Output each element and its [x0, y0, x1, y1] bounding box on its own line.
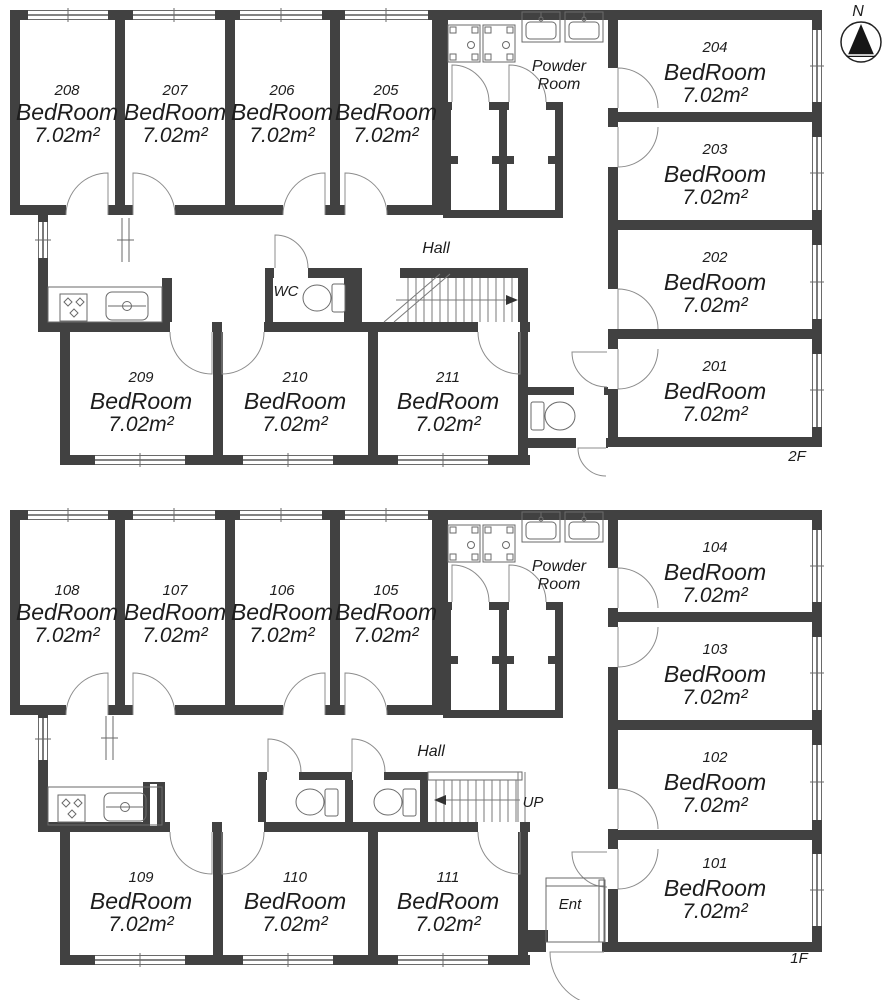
door-opening [514, 656, 548, 664]
floor-label-2f: 2F [787, 448, 806, 465]
door-opening [283, 205, 325, 215]
door-opening [576, 438, 606, 448]
stair-landing [428, 772, 522, 780]
room-type: BedRoom [231, 599, 333, 625]
room-number: 105 [373, 582, 399, 599]
room-label: 108BedRoom7.02m² [16, 582, 118, 647]
compass: N [841, 3, 881, 62]
room-type: BedRoom [335, 599, 437, 625]
door-arc [618, 127, 658, 167]
wall [528, 930, 548, 944]
door-arc [618, 68, 658, 108]
door-opening [608, 568, 618, 608]
room-label: 103BedRoom7.02m² [664, 641, 766, 709]
room-area: 7.02m² [682, 294, 748, 317]
door-opening [345, 705, 387, 715]
north-label: N [852, 3, 864, 20]
room-labels-1f: 108BedRoom7.02m² 107BedRoom7.02m² 106Bed… [16, 539, 766, 936]
kitchen-2f [48, 287, 162, 322]
wall [400, 268, 518, 278]
room-area: 7.02m² [682, 794, 748, 817]
door-opening [133, 205, 175, 215]
room-label: 208BedRoom7.02m² [16, 82, 118, 147]
room-number: 204 [701, 39, 727, 56]
door-opening [452, 602, 489, 610]
wall [618, 220, 812, 230]
window [810, 745, 824, 820]
door-opening [283, 705, 325, 715]
room-area: 7.02m² [353, 624, 419, 647]
room-labels-2f: 208BedRoom7.02m² 207BedRoom7.02m² 206Bed… [16, 39, 766, 436]
washing-machine-icon [448, 25, 480, 62]
door-arc [222, 832, 264, 874]
window [243, 453, 333, 467]
window [810, 245, 824, 319]
door-opening [509, 602, 546, 610]
room-label: 207BedRoom7.02m² [124, 82, 226, 147]
room-label: 202BedRoom7.02m² [664, 249, 766, 317]
window [243, 953, 333, 967]
door-arc [268, 739, 301, 772]
wall [265, 278, 273, 322]
wall [518, 268, 528, 322]
door-opening [608, 68, 618, 108]
wall [443, 710, 563, 718]
room-area: 7.02m² [34, 624, 100, 647]
room-area: 7.02m² [353, 124, 419, 147]
room-label: 206BedRoom7.02m² [231, 82, 333, 147]
room-type: BedRoom [664, 161, 766, 187]
room-area: 7.02m² [682, 900, 748, 923]
door-arc [618, 849, 658, 889]
door-opening [133, 705, 175, 715]
wall [618, 10, 812, 20]
window [240, 508, 322, 522]
door-opening [458, 156, 492, 164]
wall [618, 510, 812, 520]
powder-room-label: Powder [532, 558, 587, 575]
door-opening [150, 784, 157, 826]
door-arc [578, 448, 606, 476]
room-area: 7.02m² [142, 124, 208, 147]
room-label: 106BedRoom7.02m² [231, 582, 333, 647]
room-label: 205BedRoom7.02m² [335, 82, 437, 147]
room-label: 105BedRoom7.02m² [335, 582, 437, 647]
room-area: 7.02m² [415, 913, 481, 936]
kitchen-sink-icon [106, 292, 148, 320]
window [810, 354, 824, 427]
room-number: 107 [162, 582, 188, 599]
wall [258, 780, 266, 822]
room-number: 208 [53, 82, 80, 99]
room-type: BedRoom [16, 599, 118, 625]
wall [60, 832, 70, 955]
door-arc [170, 332, 212, 374]
wall [443, 610, 451, 718]
door-opening [574, 387, 604, 395]
door-arc [618, 789, 658, 829]
room-number: 207 [161, 82, 188, 99]
door-arc [275, 235, 308, 268]
door-arc [618, 568, 658, 608]
wall [345, 780, 353, 822]
up-label: UP [523, 794, 544, 811]
room-label: 209BedRoom7.02m² [90, 369, 192, 436]
wall [618, 830, 812, 840]
door-arc [452, 65, 489, 102]
door-opening [345, 205, 387, 215]
north-arrow-icon [847, 24, 875, 57]
room-number: 102 [702, 749, 728, 766]
wall [608, 437, 822, 447]
wall [420, 780, 428, 822]
wall [555, 110, 563, 218]
room-label: 201BedRoom7.02m² [664, 358, 766, 426]
window [345, 8, 428, 22]
wall [60, 332, 70, 455]
room-area: 7.02m² [262, 913, 328, 936]
door-opening [66, 705, 108, 715]
room-area: 7.02m² [262, 413, 328, 436]
floor-1f: 108BedRoom7.02m² 107BedRoom7.02m² 106Bed… [10, 508, 824, 1000]
wall [38, 322, 530, 332]
room-area: 7.02m² [108, 913, 174, 936]
floor-2f: 208BedRoom7.02m² 207BedRoom7.02m² 206Bed… [10, 8, 824, 476]
door-opening [222, 822, 264, 832]
window [28, 508, 108, 522]
door-opening [509, 102, 546, 110]
room-label: 203BedRoom7.02m² [664, 141, 766, 209]
ent-label: Ent [559, 896, 582, 913]
floor-plan-drawing: 208BedRoom7.02m² 207BedRoom7.02m² 206Bed… [0, 0, 888, 1000]
door-arc [478, 832, 520, 874]
room-type: BedRoom [664, 661, 766, 687]
door-arc [618, 349, 658, 389]
window [810, 30, 824, 102]
washing-machine-icon [483, 525, 515, 562]
room-label: 210BedRoom7.02m² [244, 369, 346, 436]
room-type: BedRoom [90, 388, 192, 414]
window [398, 453, 488, 467]
door-opening [608, 127, 618, 167]
room-number: 203 [701, 141, 728, 158]
toilet-icon [374, 789, 416, 816]
wall [618, 612, 812, 622]
room-number: 110 [283, 869, 308, 886]
room-type: BedRoom [124, 599, 226, 625]
room-area: 7.02m² [249, 624, 315, 647]
room-number: 206 [268, 82, 295, 99]
toilet-icon [296, 789, 338, 816]
door-arc [572, 852, 607, 887]
door-opening [170, 322, 212, 332]
door-opening [478, 822, 520, 832]
door-opening [514, 156, 548, 164]
room-number: 202 [701, 249, 728, 266]
stair-void-railing [101, 716, 118, 760]
wall [555, 610, 563, 718]
wall [618, 720, 812, 730]
floor-plan: 208BedRoom7.02m² 207BedRoom7.02m² 206Bed… [0, 0, 888, 1000]
room-number: 205 [372, 82, 399, 99]
window [35, 718, 51, 760]
stair-void-railing [117, 218, 134, 262]
room-type: BedRoom [664, 59, 766, 85]
door-opening [222, 322, 264, 332]
stove-icon [58, 795, 85, 822]
room-area: 7.02m² [142, 624, 208, 647]
window [345, 508, 428, 522]
room-number: 209 [127, 369, 154, 386]
window [35, 222, 51, 258]
room-area: 7.02m² [249, 124, 315, 147]
door-arc [352, 739, 385, 772]
room-label: 109BedRoom7.02m² [90, 869, 192, 936]
door-opening [608, 627, 618, 667]
hall-label: Hall [417, 743, 445, 760]
door-opening [608, 289, 618, 329]
room-label: 104BedRoom7.02m² [664, 539, 766, 607]
room-number: 210 [281, 369, 308, 386]
stairs-1f [428, 772, 525, 822]
door-opening [608, 789, 618, 829]
window [810, 137, 824, 210]
powder-room-label: Room [538, 576, 581, 593]
door-arc [478, 332, 520, 374]
room-type: BedRoom [664, 269, 766, 295]
room-number: 106 [269, 582, 295, 599]
room-area: 7.02m² [682, 686, 748, 709]
room-label: 107BedRoom7.02m² [124, 582, 226, 647]
door-opening [452, 102, 489, 110]
door-arc [170, 832, 212, 874]
room-type: BedRoom [664, 875, 766, 901]
door-opening [608, 849, 618, 889]
window [398, 953, 488, 967]
room-number: 111 [437, 869, 460, 886]
wall [443, 210, 563, 218]
room-area: 7.02m² [682, 186, 748, 209]
kitchen-sink-icon [104, 793, 146, 821]
room-type: BedRoom [397, 888, 499, 914]
room-area: 7.02m² [415, 413, 481, 436]
washing-machine-icon [448, 525, 480, 562]
room-type: BedRoom [664, 769, 766, 795]
room-type: BedRoom [244, 388, 346, 414]
wall [443, 110, 451, 218]
room-type: BedRoom [231, 99, 333, 125]
room-label: 102BedRoom7.02m² [664, 749, 766, 817]
window [810, 530, 824, 602]
window [810, 854, 824, 926]
room-type: BedRoom [90, 888, 192, 914]
room-area: 7.02m² [34, 124, 100, 147]
window [133, 508, 215, 522]
wall [162, 278, 172, 322]
room-number: 101 [702, 855, 727, 872]
washing-machine-icon [483, 25, 515, 62]
door-arc [618, 289, 658, 329]
room-number: 108 [54, 582, 80, 599]
stairs-2f [384, 274, 518, 322]
wc-label: WC [274, 283, 299, 300]
door-arc [452, 565, 489, 602]
room-label: 110BedRoom7.02m² [244, 869, 346, 936]
stove-icon [60, 294, 87, 321]
room-label: 204BedRoom7.02m² [664, 39, 766, 107]
door-opening [608, 349, 618, 389]
room-type: BedRoom [335, 99, 437, 125]
room-type: BedRoom [664, 559, 766, 585]
room-type: BedRoom [244, 888, 346, 914]
window [28, 8, 108, 22]
wall [352, 268, 362, 322]
room-area: 7.02m² [682, 403, 748, 426]
door-opening [478, 322, 520, 332]
powder-room-label: Powder [532, 58, 587, 75]
window [240, 8, 322, 22]
wall [38, 822, 530, 832]
window [95, 953, 185, 967]
toilet-icon [303, 284, 345, 312]
window [810, 637, 824, 710]
wall [618, 112, 812, 122]
door-opening [458, 656, 492, 664]
floor-label-1f: 1F [790, 950, 808, 967]
room-area: 7.02m² [682, 84, 748, 107]
room-area: 7.02m² [108, 413, 174, 436]
room-type: BedRoom [397, 388, 499, 414]
room-label: 101BedRoom7.02m² [664, 855, 766, 923]
room-type: BedRoom [124, 99, 226, 125]
room-label: 211BedRoom7.02m² [397, 369, 499, 436]
wall [368, 332, 378, 455]
door-opening [66, 205, 108, 215]
room-area: 7.02m² [682, 584, 748, 607]
door-opening [170, 822, 212, 832]
wall [618, 329, 812, 339]
room-label: 111BedRoom7.02m² [397, 869, 499, 936]
door-arc [572, 352, 607, 387]
entrance-door-arc [550, 952, 604, 1000]
door-arc [222, 332, 264, 374]
door-opening [352, 772, 384, 780]
room-number: 109 [128, 869, 154, 886]
stair-treads [436, 780, 516, 822]
room-type: BedRoom [664, 378, 766, 404]
window [133, 8, 215, 22]
room-number: 201 [701, 358, 727, 375]
door-opening [274, 268, 308, 278]
door-opening [267, 772, 299, 780]
powder-room-label: Room [538, 76, 581, 93]
door-opening [546, 942, 602, 952]
hall-label: Hall [422, 240, 450, 257]
room-number: 211 [435, 369, 460, 386]
room-type: BedRoom [16, 99, 118, 125]
room-number: 103 [702, 641, 728, 658]
room-number: 104 [702, 539, 727, 556]
door-arc [618, 627, 658, 667]
window [95, 453, 185, 467]
toilet-icon [531, 402, 575, 430]
wall [368, 832, 378, 955]
